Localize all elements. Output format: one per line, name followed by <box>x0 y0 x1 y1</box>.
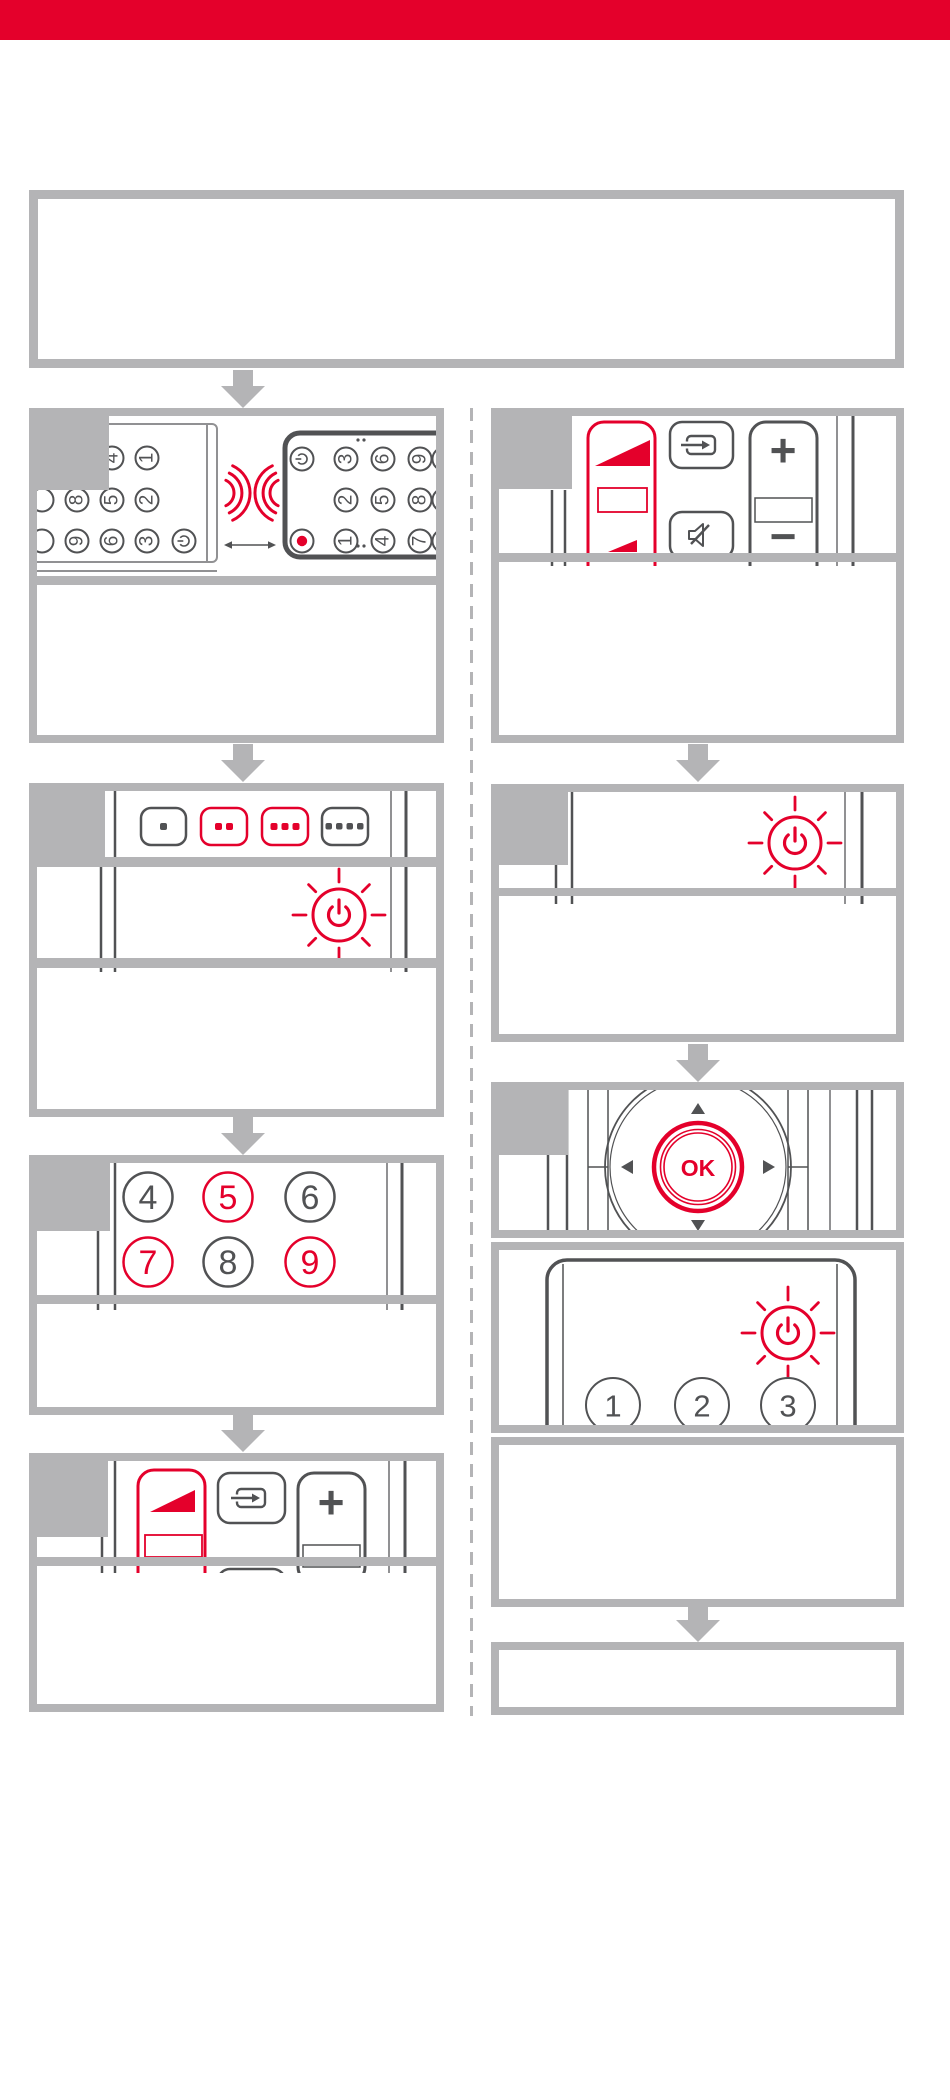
strip-divider <box>37 576 436 585</box>
flow-arrow-down-icon <box>676 1044 720 1082</box>
digit-button-7: 7 <box>410 536 431 547</box>
digit-button-3: 3 <box>336 454 357 465</box>
step-text-area <box>499 566 896 735</box>
digit-button-2: 2 <box>137 495 158 506</box>
digit-button-4: 4 <box>373 535 394 546</box>
step-number-placeholder <box>29 408 109 490</box>
flow-arrow-down-icon <box>676 1604 720 1642</box>
plus-label: + <box>770 424 797 476</box>
mode-button-2-dots <box>201 808 247 845</box>
device-remote-illustration: 1 2 3 <box>499 1250 896 1425</box>
distance-arrow-icon <box>224 541 276 549</box>
digit-button-2: 2 <box>336 495 357 506</box>
dpad-left-icon <box>621 1160 633 1174</box>
digit-button-1: 1 <box>604 1389 621 1424</box>
power-button-icon <box>291 448 314 471</box>
digit-button-6: 6 <box>373 454 394 465</box>
digit-button-9: 9 <box>410 454 431 465</box>
step-text-area <box>499 904 896 1034</box>
step-number-placeholder <box>491 784 568 865</box>
step-text-area <box>37 972 436 1109</box>
blinking-power-icon <box>749 797 841 889</box>
step-number-placeholder <box>491 408 572 489</box>
digit-button-1: 1 <box>137 453 158 464</box>
dpad-up-icon <box>691 1103 705 1114</box>
digit-button-7: 7 <box>139 1244 158 1282</box>
digit-button-3: 3 <box>137 536 158 547</box>
manual-page: 1 2 3 4 5 6 7 8 9 <box>0 0 950 2100</box>
digit-button-5: 5 <box>102 495 123 506</box>
step-text-area <box>37 1310 436 1407</box>
input-button <box>670 422 733 468</box>
flow-arrow-down-icon <box>221 1414 265 1452</box>
digit-button-9: 9 <box>67 536 88 547</box>
step-text-area <box>37 1573 436 1704</box>
flow-arrow-down-icon <box>221 1117 265 1155</box>
dpad-down-icon <box>691 1220 705 1230</box>
column-divider <box>470 408 473 1716</box>
step-number-placeholder <box>29 1453 108 1537</box>
digit-button-8: 8 <box>67 495 88 506</box>
mode-button-1-dot <box>141 808 186 845</box>
blinking-power-icon <box>293 869 385 961</box>
target-remote: 3 6 9 2 5 8 1 4 7 <box>285 433 436 557</box>
intro-text-box <box>29 190 904 368</box>
flow-arrow-down-icon <box>676 744 720 782</box>
dpad: OK <box>588 1090 808 1230</box>
mode-button-4-dots <box>322 808 368 845</box>
plus-label: + <box>318 1476 345 1528</box>
volume-rocker <box>588 422 655 566</box>
input-button <box>218 1473 285 1523</box>
step-text-box <box>491 1437 904 1607</box>
flow-arrow-down-icon <box>221 744 265 782</box>
note-box <box>491 1642 904 1715</box>
step-text-area <box>37 585 436 735</box>
digit-button-5: 5 <box>219 1179 238 1217</box>
digit-button-6: 6 <box>301 1179 320 1217</box>
ok-label: OK <box>681 1155 716 1181</box>
digit-button-1: 1 <box>336 536 357 547</box>
digit-button-8: 8 <box>410 495 431 506</box>
digit-button-4: 4 <box>139 1179 158 1217</box>
digit-button-2: 2 <box>693 1389 710 1424</box>
header-banner <box>0 0 950 40</box>
ok-button: OK <box>654 1123 742 1211</box>
digit-button-6: 6 <box>102 536 123 547</box>
digit-button-5: 5 <box>373 495 394 506</box>
mode-button-3-dots <box>262 808 308 845</box>
ir-signal-waves-icon <box>226 466 278 520</box>
digit-button-8: 8 <box>219 1244 238 1282</box>
step-number-placeholder <box>29 783 105 858</box>
digit-button-9: 9 <box>301 1244 320 1282</box>
dpad-right-icon <box>763 1160 775 1174</box>
step-number-placeholder <box>491 1082 568 1155</box>
step-number-placeholder <box>29 1155 110 1231</box>
mute-button <box>670 512 733 558</box>
record-button-icon <box>291 530 314 553</box>
plus-minus-rocker: + − <box>750 422 817 566</box>
power-button-icon <box>173 530 196 553</box>
digit-button-3: 3 <box>779 1389 796 1424</box>
flow-arrow-down-icon <box>221 370 265 408</box>
